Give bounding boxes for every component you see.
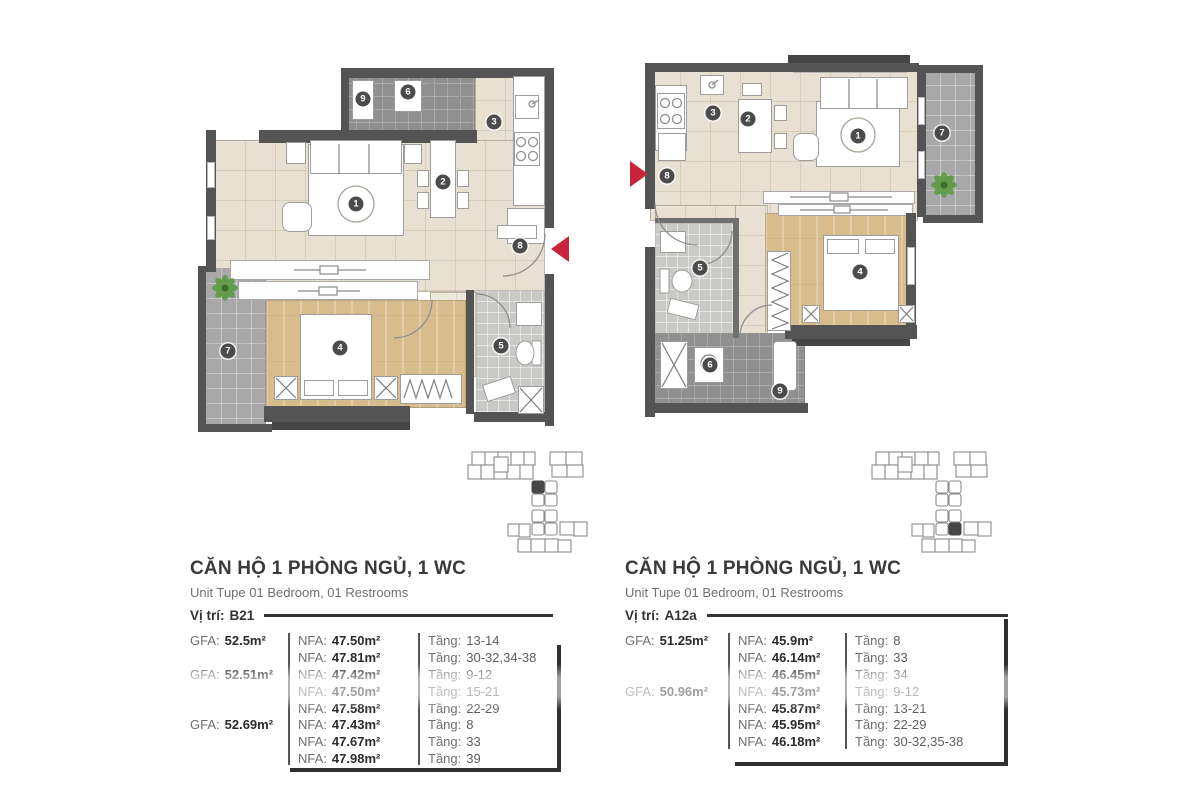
unit-spec-b21: CĂN HỘ 1 PHÒNG NGỦ, 1 WC Unit Tupe 01 Be… (190, 558, 562, 788)
site-keyplan-a12a (856, 444, 996, 556)
unit-spec-a12a: CĂN HỘ 1 PHÒNG NGỦ, 1 WC Unit Tupe 01 Be… (625, 558, 1008, 788)
room-badge-entry: 8 (513, 239, 528, 254)
window (907, 247, 915, 285)
room-badge-kitchen: 3 (487, 115, 502, 130)
corridor (735, 205, 768, 339)
location-rule (707, 614, 1008, 617)
gfa-value: 51.25m² (660, 633, 708, 648)
entry-cabinet (497, 225, 537, 239)
window (207, 216, 215, 240)
wall (545, 274, 554, 426)
wardrobe-ledge (778, 204, 913, 216)
unit-location-row: Vị trí: B21 (190, 608, 562, 623)
floorplan-a12a: 1 2 3 4 5 6 7 8 9 (630, 55, 985, 463)
window (918, 97, 925, 125)
gfa-label: GFA: (190, 667, 220, 682)
room-badge-bedroom: 4 (853, 265, 868, 280)
side-table (286, 142, 306, 164)
ac-ledge (230, 260, 430, 280)
shaft (660, 341, 688, 389)
wall (975, 65, 983, 223)
chair (457, 170, 469, 187)
chair (742, 83, 762, 96)
wall (198, 424, 272, 432)
room-badge-bathroom: 5 (494, 339, 509, 354)
balcony (925, 70, 977, 218)
pillow (304, 380, 334, 396)
wall (792, 339, 910, 346)
room-badge-bedroom: 4 (333, 341, 348, 356)
gfa-value: 52.5m² (225, 633, 266, 648)
wall (645, 63, 919, 72)
dining-table (738, 99, 772, 153)
chair (774, 133, 787, 149)
table-frame (290, 645, 561, 772)
wall (917, 65, 983, 73)
sofa (820, 77, 908, 109)
window (918, 151, 925, 179)
gfa-entry: GFA: 52.5m² (190, 632, 266, 649)
shaft (518, 386, 544, 414)
wall (645, 247, 655, 417)
armchair (793, 133, 819, 161)
armchair (282, 202, 312, 232)
gfa-label: GFA: (625, 684, 655, 699)
location-value: B21 (230, 608, 255, 623)
room-badge-dryer: 6 (401, 85, 416, 100)
wall (655, 218, 735, 223)
room-badge-laundry: 9 (356, 92, 371, 107)
location-label: Vị trí: (190, 608, 225, 623)
wall (545, 68, 554, 228)
unit-subtitle: Unit Tupe 01 Bedroom, 01 Restrooms (625, 585, 843, 600)
chair (417, 170, 429, 187)
room-badge-kitchen: 3 (706, 106, 721, 121)
pillow (865, 239, 895, 254)
chair (774, 105, 787, 121)
wardrobe-ledge (238, 281, 418, 300)
room-badge-laundry: 6 (703, 358, 718, 373)
wall (645, 63, 655, 209)
window (207, 162, 215, 188)
kitchen-sink (700, 75, 724, 95)
wardrobe (767, 251, 791, 331)
entry-arrow-icon (551, 236, 569, 262)
bathroom-sink (516, 302, 542, 326)
floorplan-b21: 1 2 3 4 5 6 7 8 9 (198, 62, 573, 432)
location-value: A12a (665, 608, 697, 623)
unit-title: CĂN HỘ 1 PHÒNG NGỦ, 1 WC (625, 558, 901, 580)
stove (657, 93, 685, 129)
table-frame (735, 619, 1008, 766)
room-badge-living: 1 (349, 197, 364, 212)
nightstand (802, 305, 820, 323)
site-keyplan-b21 (452, 444, 592, 556)
nightstand (374, 376, 398, 400)
wall (466, 290, 474, 414)
unit-subtitle: Unit Tupe 01 Bedroom, 01 Restrooms (190, 585, 408, 600)
floor-lamp (404, 144, 422, 164)
location-rule (264, 614, 553, 617)
room-badge-balcony: 7 (935, 126, 950, 141)
location-label: Vị trí: (625, 608, 660, 623)
chair (457, 192, 469, 209)
wall (917, 71, 926, 217)
nightstand (274, 376, 298, 400)
stove (514, 132, 540, 166)
wall (264, 406, 410, 422)
room-badge-balcony: 7 (221, 344, 236, 359)
gfa-entry: GFA: 50.96m² (625, 683, 708, 700)
gfa-label: GFA: (625, 633, 655, 648)
kitchen-sink (515, 95, 539, 119)
wall (733, 218, 739, 338)
wall (206, 130, 216, 272)
bathroom-sink (660, 231, 686, 253)
watermark-band (0, 664, 1200, 710)
pillow (338, 380, 368, 396)
gfa-entry: GFA: 52.69m² (190, 716, 273, 733)
entry-arrow-icon (630, 161, 648, 187)
room-badge-dining: 2 (436, 175, 451, 190)
gfa-entry: GFA: 51.25m² (625, 632, 708, 649)
nightstand (898, 305, 915, 323)
pillow (827, 239, 859, 254)
wall (923, 215, 983, 223)
column-divider (728, 633, 730, 749)
room-badge-bathroom: 5 (693, 261, 708, 276)
cabinet (658, 133, 686, 161)
chair (417, 192, 429, 209)
wall (650, 403, 808, 413)
unit-title: CĂN HỘ 1 PHÒNG NGỦ, 1 WC (190, 558, 466, 580)
gfa-value: 50.96m² (660, 684, 708, 699)
room-badge-entry: 8 (660, 169, 675, 184)
brochure-canvas: 1 2 3 4 5 6 7 8 9 (0, 0, 1200, 800)
room-badge-living: 1 (851, 129, 866, 144)
wardrobe (400, 374, 462, 404)
wall (785, 325, 917, 339)
gfa-label: GFA: (190, 717, 220, 732)
gfa-value: 52.69m² (225, 717, 273, 732)
room-badge-dining: 2 (741, 112, 756, 127)
gfa-entry: GFA: 52.51m² (190, 666, 273, 683)
gfa-label: GFA: (190, 633, 220, 648)
sofa (310, 140, 402, 174)
ac-ledge (763, 191, 915, 204)
wall (272, 422, 410, 430)
room-badge-utility: 9 (773, 384, 788, 399)
wall (198, 266, 206, 432)
gfa-value: 52.51m² (225, 667, 273, 682)
